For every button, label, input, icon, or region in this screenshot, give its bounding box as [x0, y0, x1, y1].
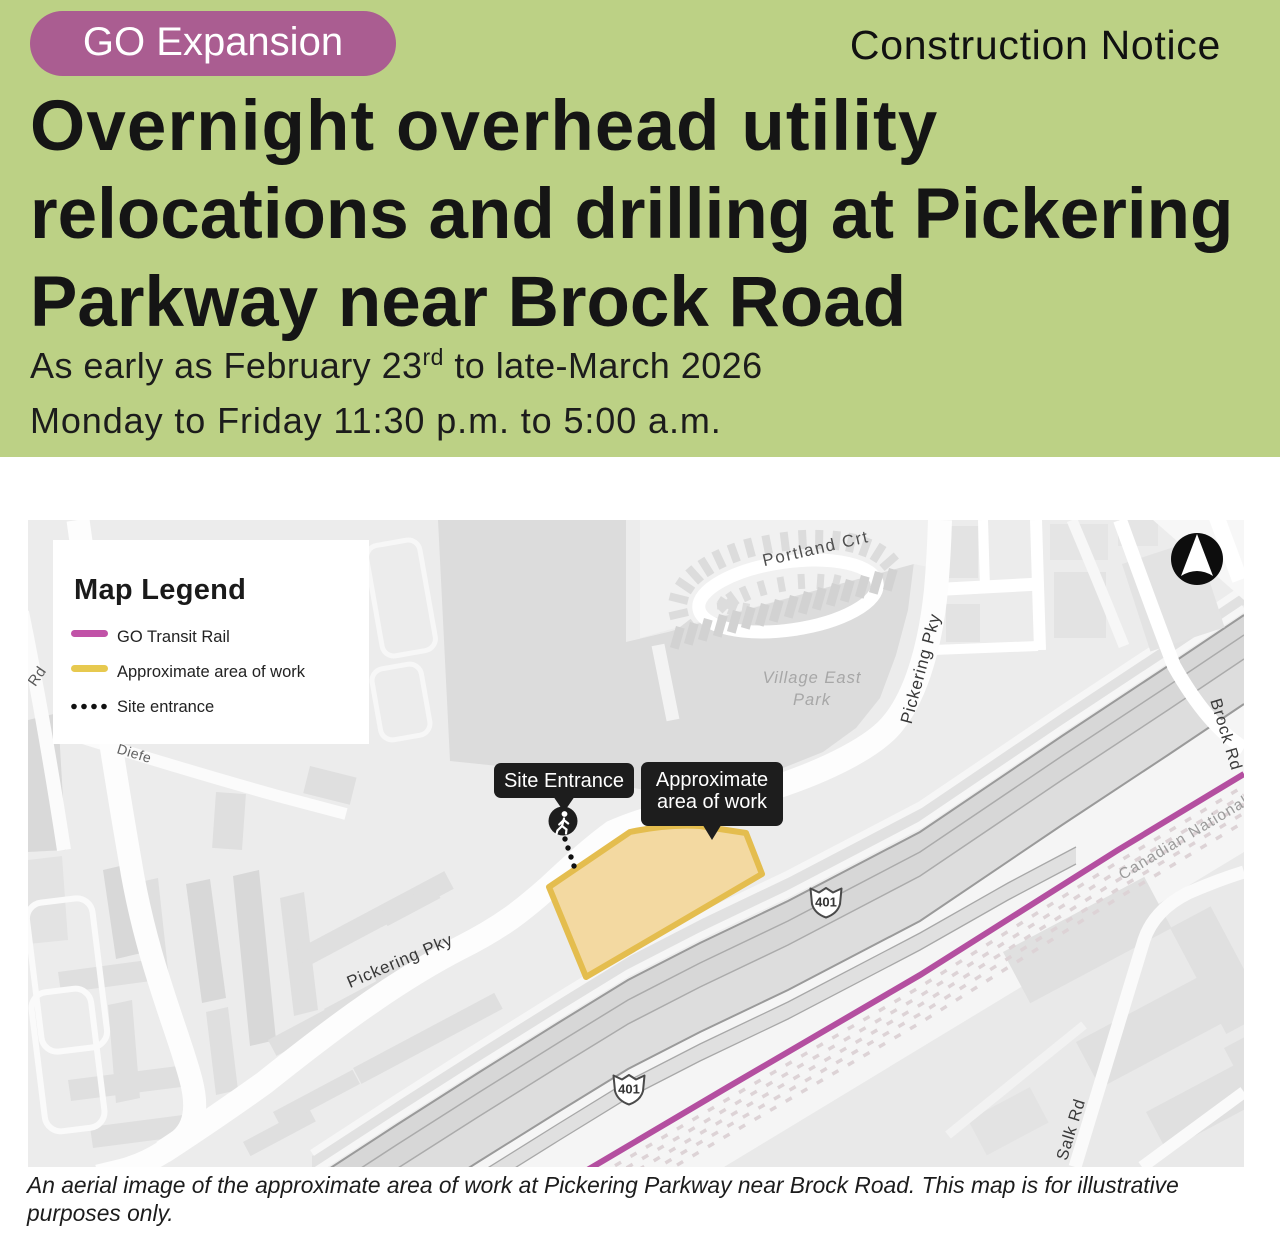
svg-text:Site entrance: Site entrance — [117, 698, 214, 716]
svg-text:401: 401 — [815, 895, 837, 910]
svg-text:Park: Park — [793, 691, 831, 709]
svg-text:Village East: Village East — [763, 669, 862, 687]
svg-text:Approximate: Approximate — [656, 769, 768, 791]
svg-text:401: 401 — [618, 1082, 640, 1097]
svg-text:GO Transit Rail: GO Transit Rail — [117, 628, 230, 646]
svg-text:Site Entrance: Site Entrance — [504, 770, 624, 792]
svg-text:Approximate area of work: Approximate area of work — [117, 663, 306, 681]
svg-text:Map Legend: Map Legend — [74, 574, 246, 606]
svg-text:area of work: area of work — [657, 791, 768, 813]
